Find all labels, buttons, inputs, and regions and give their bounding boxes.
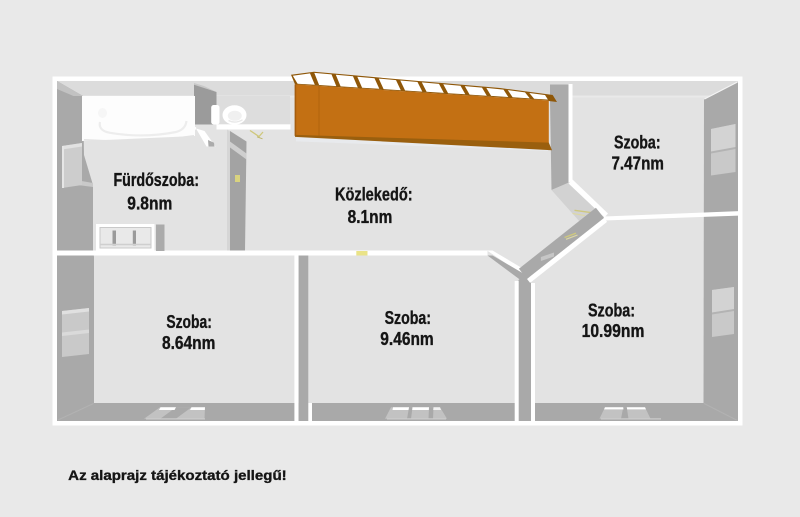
svg-text:10.99nm: 10.99nm: [582, 321, 645, 341]
svg-text:8.1nm: 8.1nm: [348, 207, 393, 227]
svg-text:Az alaprajz tájékoztató jelleg: Az alaprajz tájékoztató jellegű!: [68, 467, 286, 483]
svg-text:Szoba:: Szoba:: [614, 133, 661, 153]
svg-text:Fürdőszoba:: Fürdőszoba:: [113, 170, 199, 190]
svg-text:7.47nm: 7.47nm: [611, 154, 664, 174]
svg-text:Szoba:: Szoba:: [166, 312, 212, 332]
svg-text:9.8nm: 9.8nm: [127, 194, 172, 214]
svg-text:8.64nm: 8.64nm: [162, 333, 215, 353]
svg-text:9.46nm: 9.46nm: [380, 329, 433, 349]
svg-text:Szoba:: Szoba:: [385, 308, 431, 328]
svg-text:Szoba:: Szoba:: [588, 301, 635, 321]
svg-text:Közlekedő:: Közlekedő:: [335, 185, 413, 205]
